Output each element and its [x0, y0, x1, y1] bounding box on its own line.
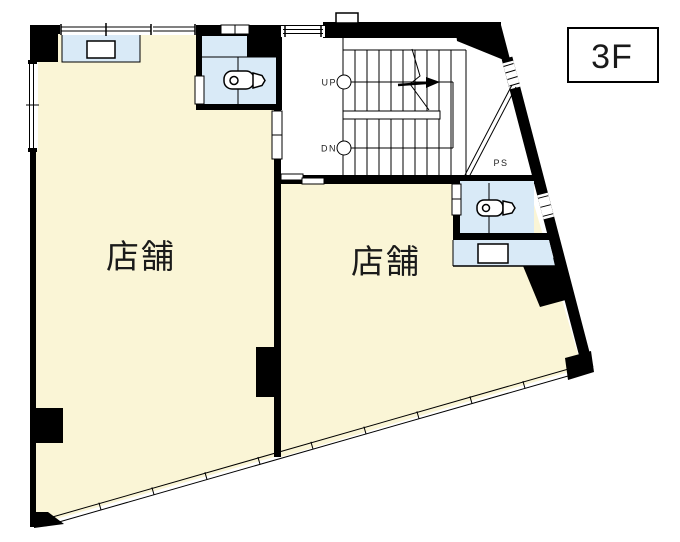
stair-down-marker: [337, 141, 351, 155]
left-restroom-door: [195, 76, 204, 104]
right-restroom-south-wall: [453, 233, 549, 240]
toilet-icon: [477, 200, 515, 216]
right-restroom-door: [452, 184, 461, 215]
floor-label-box: 3F: [568, 28, 658, 82]
pipe-space-label: PS: [493, 158, 508, 168]
stair-landing: [343, 111, 440, 119]
sink-icon: [478, 244, 508, 263]
restroom-top-window: [221, 25, 249, 34]
stair-down-label: DN: [321, 144, 337, 154]
top-window-1: [60, 23, 152, 36]
entrance-counter: [62, 33, 140, 62]
floor-label: 3F: [591, 38, 633, 76]
counter-sink-icon: [87, 41, 115, 58]
floor-plan: UP DN PS: [0, 0, 680, 542]
top-window-2: [152, 24, 196, 35]
hall-top-window: [281, 26, 325, 37]
left-wall-window: [26, 60, 39, 152]
stair-up-marker: [337, 75, 351, 89]
left-restroom: [199, 33, 279, 107]
top-left-pillar: [30, 27, 58, 62]
floor-plan-canvas: UP DN PS: [0, 0, 680, 542]
stair-up-label: UP: [321, 78, 337, 88]
left-shop-label: 店舗: [106, 238, 176, 275]
roof-protrusion: [336, 13, 358, 23]
right-shop-label: 店舗: [351, 243, 421, 280]
left-restroom-shaft: [247, 36, 276, 57]
sink-counter: [453, 240, 556, 266]
divider-pillar: [256, 347, 279, 397]
left-wall-pillar: [30, 408, 63, 443]
left-shop-door: [272, 111, 282, 159]
